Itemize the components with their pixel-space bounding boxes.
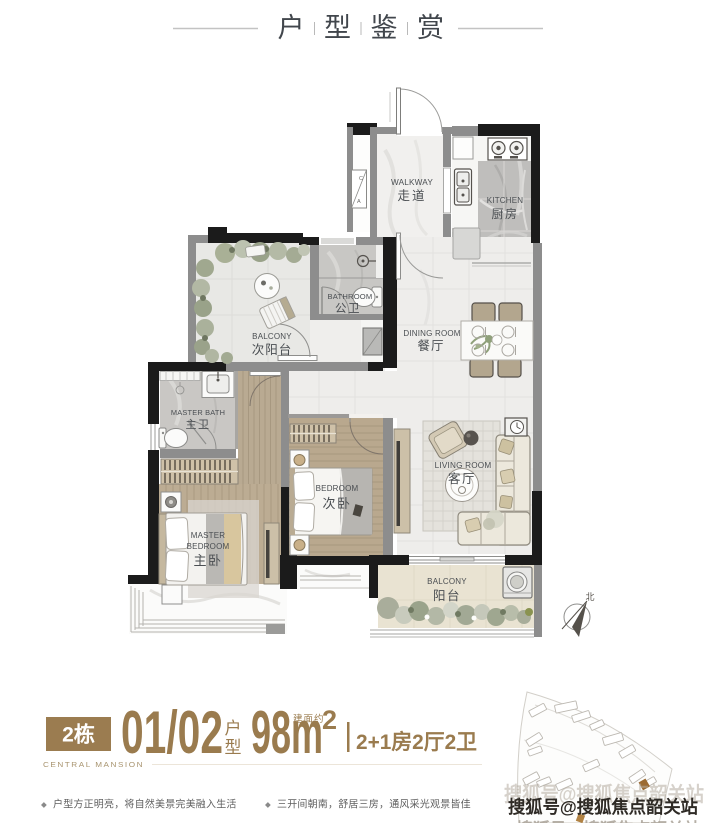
svg-text:型: 型 — [324, 13, 351, 43]
svg-text:CENTRAL MANSION: CENTRAL MANSION — [43, 760, 144, 769]
svg-text:餐厅: 餐厅 — [417, 338, 444, 353]
svg-text:2+1房2厅2卫: 2+1房2厅2卫 — [356, 730, 477, 754]
svg-text:A: A — [357, 199, 361, 205]
svg-text:阳台: 阳台 — [433, 588, 461, 603]
svg-text:MASTER: MASTER — [191, 531, 226, 540]
svg-text:次阳台: 次阳台 — [252, 342, 293, 357]
svg-text:2栋: 2栋 — [62, 723, 95, 747]
svg-text:BEDROOM: BEDROOM — [316, 484, 359, 493]
svg-text:三开间朝南，舒居三房，通风采光观景皆佳: 三开间朝南，舒居三房，通风采光观景皆佳 — [277, 798, 471, 811]
svg-text:型: 型 — [225, 738, 242, 757]
svg-text:BEDROOM: BEDROOM — [187, 542, 230, 551]
svg-text:01/02: 01/02 — [121, 699, 223, 766]
svg-text:BALCONY: BALCONY — [427, 577, 467, 586]
svg-text:C: C — [359, 176, 363, 182]
svg-text:DINING ROOM: DINING ROOM — [403, 329, 460, 338]
svg-text:户型方正明亮，将自然美景完美融入生活: 户型方正明亮，将自然美景完美融入生活 — [53, 798, 237, 811]
svg-text:98m: 98m — [251, 699, 323, 766]
svg-text:建面约: 建面约 — [293, 713, 325, 725]
svg-text:KITCHEN: KITCHEN — [487, 196, 524, 205]
svg-text:搜狐号@搜狐焦点韶关站: 搜狐号@搜狐焦点韶关站 — [516, 819, 701, 823]
svg-text:MASTER BATH: MASTER BATH — [171, 408, 225, 417]
svg-text:走道: 走道 — [397, 189, 426, 203]
svg-text:主卫: 主卫 — [186, 418, 211, 431]
svg-text:WALKWAY: WALKWAY — [391, 178, 433, 187]
svg-text:北: 北 — [585, 592, 594, 602]
svg-text:户: 户 — [225, 719, 242, 738]
svg-text:公卫: 公卫 — [335, 302, 361, 315]
svg-text:BALCONY: BALCONY — [252, 332, 292, 341]
svg-text:搜狐号@搜狐焦点韶关站: 搜狐号@搜狐焦点韶关站 — [508, 797, 698, 817]
svg-text:次卧: 次卧 — [322, 496, 351, 511]
svg-text:客厅: 客厅 — [448, 471, 476, 486]
svg-text:LIVING ROOM: LIVING ROOM — [435, 461, 492, 470]
svg-text:BATHROOM: BATHROOM — [328, 292, 373, 301]
svg-text:户: 户 — [278, 13, 305, 43]
svg-text:厨房: 厨房 — [491, 206, 518, 221]
svg-text:赏: 赏 — [417, 13, 444, 43]
svg-text:鉴: 鉴 — [371, 13, 398, 43]
svg-text:主卧: 主卧 — [193, 553, 222, 568]
